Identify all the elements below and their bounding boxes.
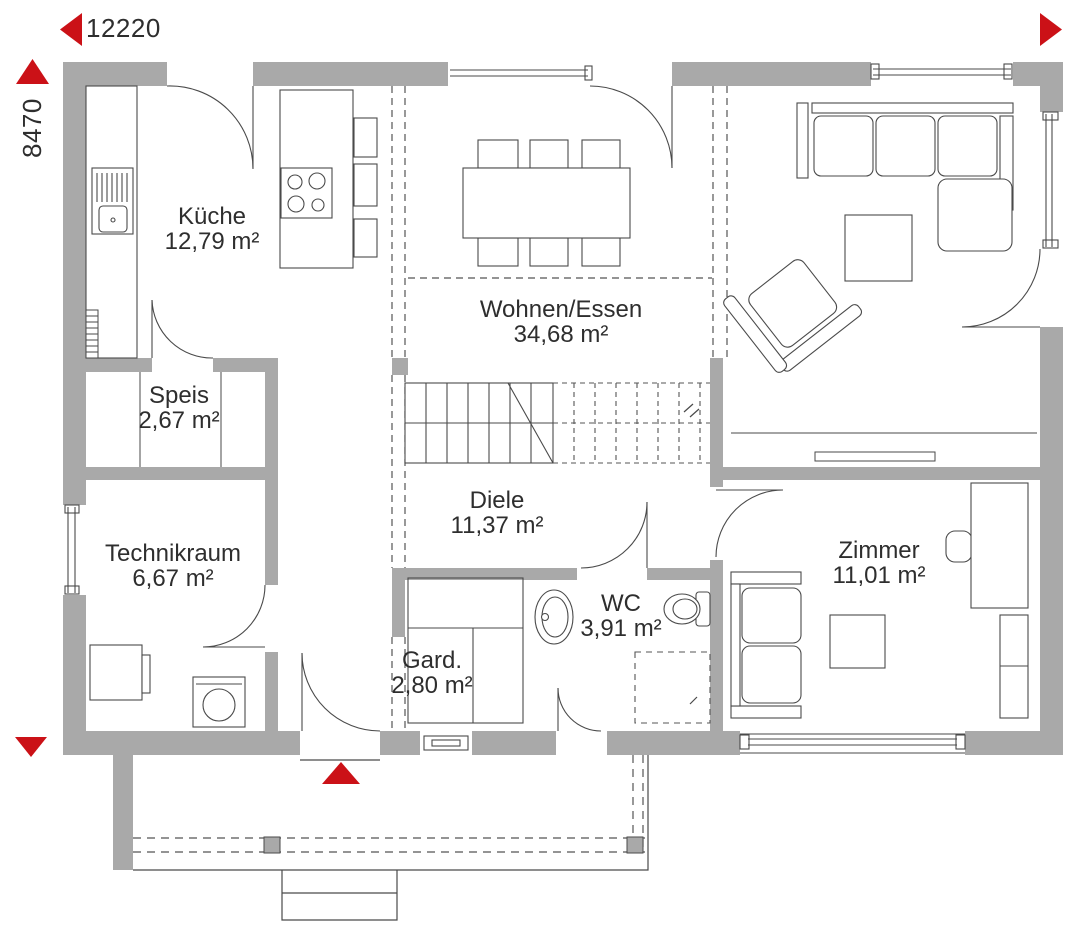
wc-dashed-area: [635, 652, 710, 723]
coffee-table: [845, 215, 912, 281]
dimension-height-label: 8470: [17, 98, 48, 158]
room-name: Zimmer: [833, 538, 926, 563]
zimmer-shelf: [1000, 615, 1028, 718]
zimmer-side-table: [830, 615, 885, 668]
room-label-wc: WC 3,91 m²: [580, 591, 661, 641]
room-label-zimmer: Zimmer 11,01 m²: [833, 538, 926, 588]
room-label-wohnen-essen: Wohnen/Essen 34,68 m²: [480, 297, 642, 347]
room-area: 12,79 m²: [165, 229, 260, 254]
room-area: 6,67 m²: [105, 566, 241, 591]
armchair: [722, 237, 864, 377]
arrow-left-icon: [60, 13, 82, 46]
washing-machine-icon: [193, 677, 245, 727]
floor-plan-drawing: [0, 0, 1080, 933]
dining-table-set: [463, 140, 630, 266]
desk-and-chair: [946, 483, 1028, 608]
arrow-down-icon: [15, 737, 47, 757]
porch-roof-dashed-lines: [133, 755, 645, 852]
living-room-lines: [731, 433, 1037, 461]
room-name: Technikraum: [105, 541, 241, 566]
stove-icon: [281, 168, 332, 218]
staircase: [405, 383, 553, 463]
room-area: 2,80 m²: [391, 673, 472, 698]
room-area: 3,91 m²: [580, 616, 661, 641]
arrow-right-icon: [1040, 13, 1062, 46]
room-name: Wohnen/Essen: [480, 297, 642, 322]
staircase-upper-dashed: [553, 383, 710, 463]
entrance-arrow-icon: [322, 762, 360, 784]
wc-marks: [690, 697, 697, 704]
zimmer-daybed: [731, 572, 801, 718]
room-label-kueche: Küche 12,79 m²: [165, 204, 260, 254]
porch-posts: [264, 837, 643, 853]
room-label-technikraum: Technikraum 6,67 m²: [105, 541, 241, 591]
room-area: 11,37 m²: [451, 513, 544, 538]
dimension-width-label: 12220: [86, 13, 161, 44]
room-area: 11,01 m²: [833, 563, 926, 588]
kitchen-radiator: [86, 310, 98, 358]
room-label-garderobe: Gard. 2,80 m²: [391, 648, 472, 698]
room-name: Gard.: [391, 648, 472, 673]
kitchen-sink: [92, 168, 133, 234]
room-label-diele: Diele 11,37 m²: [451, 488, 544, 538]
arrow-up-icon: [16, 59, 49, 84]
room-name: WC: [580, 591, 661, 616]
room-name: Speis: [138, 383, 219, 408]
room-name: Küche: [165, 204, 260, 229]
room-area: 34,68 m²: [480, 322, 642, 347]
wc-sink-icon: [535, 590, 573, 644]
room-label-speis: Speis 2,67 m²: [138, 383, 219, 433]
toilet-icon: [664, 592, 710, 626]
room-name: Diele: [451, 488, 544, 513]
room-area: 2,67 m²: [138, 408, 219, 433]
technikraum-appliances: [90, 645, 150, 700]
floor-plan-canvas: 12220 8470 Küche 12,79 m² Wohnen/Essen 3…: [0, 0, 1080, 933]
stair-direction-marks: [684, 404, 699, 417]
